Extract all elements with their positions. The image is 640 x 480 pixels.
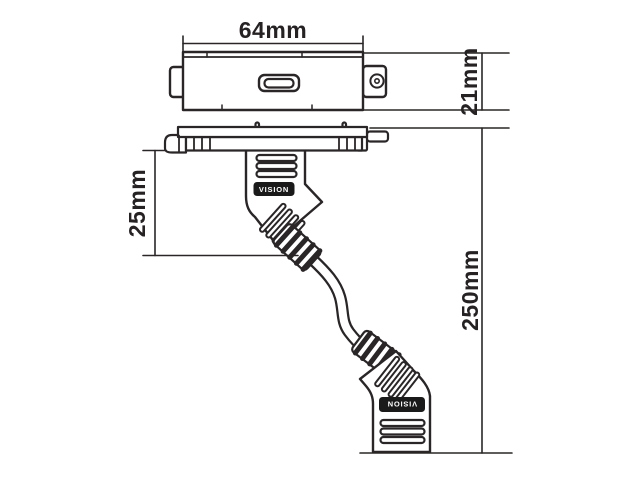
plate-top-bar xyxy=(178,127,367,137)
dim-plate-height-label: 21mm xyxy=(456,47,482,115)
dim-connector-drop-label: 25mm xyxy=(124,169,150,237)
rib-slot xyxy=(381,429,425,435)
rib-slot xyxy=(257,163,297,169)
cable xyxy=(312,259,366,350)
rib-slot xyxy=(257,171,297,177)
dim-plate-width-label: 64mm xyxy=(239,17,307,43)
brand-label-top: VISION xyxy=(259,185,289,194)
technical-drawing: VISION VISION xyxy=(0,0,640,480)
front-view xyxy=(170,52,386,110)
rib-slot xyxy=(257,155,297,161)
drawing-canvas: VISION VISION xyxy=(0,0,640,480)
plate-pin xyxy=(367,132,388,142)
side-view-plate xyxy=(165,123,388,153)
rib-slot xyxy=(381,437,425,443)
brand-label-bottom: VISION xyxy=(387,400,417,409)
dim-overall-length-label: 250mm xyxy=(457,249,483,331)
rib-slot xyxy=(381,420,425,426)
faceplate-body xyxy=(183,52,363,110)
plate-lower-bar xyxy=(186,137,362,151)
